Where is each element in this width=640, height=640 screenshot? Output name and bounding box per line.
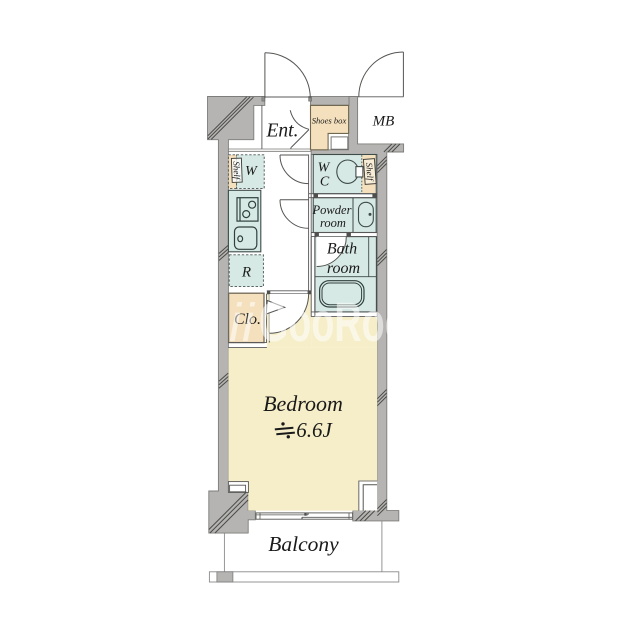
svg-text:GooRooM: GooRooM [259,290,439,353]
svg-text:ii: ii [229,293,256,353]
svg-text:Ent.: Ent. [266,121,299,142]
svg-text:6.6J: 6.6J [296,418,333,442]
svg-text:C: C [320,175,330,190]
svg-text:W: W [245,164,258,179]
svg-text:Balcony: Balcony [268,532,339,556]
svg-text:room: room [327,260,360,277]
svg-text:R: R [241,265,251,281]
svg-text:Shelf: Shelf [364,162,375,182]
svg-text:Bath: Bath [327,241,357,258]
svg-text:Bedroom: Bedroom [263,391,343,416]
svg-text:Shoes box: Shoes box [312,116,347,126]
svg-text:Shelf: Shelf [231,161,242,181]
svg-text:MB: MB [372,114,395,130]
svg-text:W: W [318,161,331,176]
svg-text:room: room [320,216,346,230]
svg-text:Powder: Powder [312,203,352,217]
